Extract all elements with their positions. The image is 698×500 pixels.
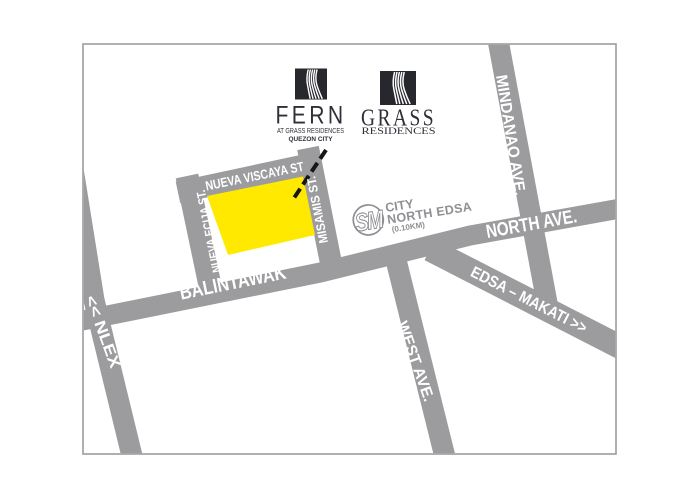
svg-text:RESIDENCES: RESIDENCES xyxy=(362,126,436,136)
svg-text:QUEZON CITY: QUEZON CITY xyxy=(289,136,334,143)
svg-text:AT GRASS RESIDENCES: AT GRASS RESIDENCES xyxy=(277,126,344,135)
